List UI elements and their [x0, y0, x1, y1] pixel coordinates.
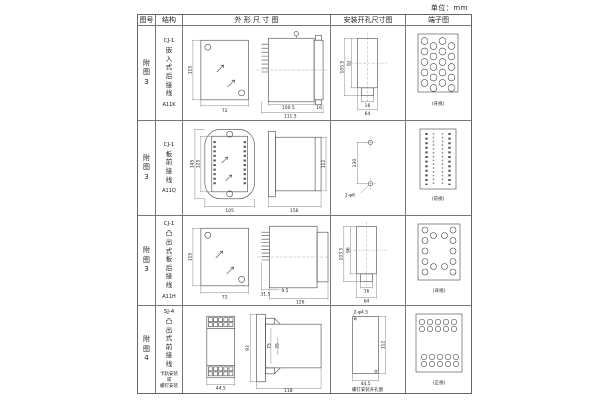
dim-label: 105: [225, 208, 234, 214]
row4-structure-type: SJ-4: [164, 309, 174, 315]
row1-mounting-cell: 105.5 92 16 64: [331, 26, 406, 121]
row2-structure-model: A11Q: [162, 188, 176, 194]
row2-mounting-cell: 130 2-φ6: [331, 121, 406, 216]
row3-terminal-drawing: (背视): [406, 216, 471, 306]
dim-label: 16: [365, 103, 371, 109]
hole-label: 2-φ6: [345, 192, 355, 198]
row4-structure-note: 卡轨安装 或 螺钉安装: [160, 372, 178, 390]
dim-label: 92: [347, 60, 353, 66]
row3-structure-desc: 凸出式板后接线: [166, 229, 173, 289]
row1-terminal-cell: (背视): [406, 26, 471, 121]
unit-label: 单位：mm: [431, 3, 468, 13]
dim-label: 9.5: [281, 287, 288, 293]
row4-structure-desc: 凸出式前接线: [166, 317, 173, 368]
row2-structure-type: CJ-1: [164, 142, 175, 148]
dim-label: 44.5: [216, 386, 226, 392]
row1-structure-cell: CJ-1 嵌入式后接线 A11K: [156, 26, 183, 121]
row2-terminal-drawing: (前视): [406, 121, 471, 216]
row3-figure-no: 附图3: [143, 246, 150, 274]
dim-label: 111.5: [284, 113, 297, 119]
row4-figure-no-cell: 附图4: [138, 306, 156, 393]
row2-structure-cell: CJ-1 板前接线 A11Q: [156, 121, 183, 216]
dim-label: 16: [364, 288, 370, 294]
dim-label: 16: [316, 105, 322, 111]
row4-mounting-drawing: 2-φ4.5 112 44.5 螺钉安装开孔图: [331, 306, 405, 393]
row4-structure-cell: SJ-4 凸出式前接线 卡轨安装 或 螺钉安装: [156, 306, 183, 393]
row4-mounting-cell: 2-φ4.5 112 44.5 螺钉安装开孔图: [331, 306, 406, 393]
row2-outline-drawing: 145 125 105 112 156: [183, 121, 330, 216]
row3-outline-drawing: 115 72 31.5 9.5 126: [183, 216, 330, 306]
mounting-caption: 螺钉安装开孔图: [352, 386, 384, 393]
dim-label: 156: [290, 208, 299, 214]
dim-label: 112: [321, 159, 327, 168]
dimension-table: 图号 结构 外 形 尺 寸 图 安装开孔尺寸图 端子图 附图3 CJ-1 嵌入式…: [137, 14, 472, 394]
header-figure-no: 图号: [138, 15, 156, 26]
page: { "unit_label": "单位：mm", "header": { "fi…: [0, 0, 600, 400]
dim-label: 118: [284, 388, 293, 393]
row4-outline-cell: 44.5 75 35 93 118: [183, 306, 331, 393]
row4-outline-drawing: 44.5 75 35 93 118: [183, 306, 330, 393]
dim-label: 145: [189, 159, 195, 168]
row2-structure-desc: 板前接线: [166, 150, 173, 184]
dim-label: 115: [187, 252, 193, 261]
row3-outline-cell: 115 72 31.5 9.5 126: [183, 216, 331, 306]
row3-figure-no-cell: 附图3: [138, 216, 156, 306]
dim-label: 112: [380, 341, 386, 350]
terminal-caption: (背视): [432, 100, 445, 107]
row2-terminal-cell: (前视): [406, 121, 471, 216]
dim-label: 44.5: [361, 381, 371, 387]
row1-outline-drawing: 115 72 100.5 16 111.5: [183, 26, 330, 121]
row3-structure-cell: CJ-1 凸出式板后接线 A11H: [156, 216, 183, 306]
dim-label: 100.5: [282, 105, 295, 111]
dim-label: 125: [195, 159, 201, 168]
terminal-caption: (背视): [433, 287, 446, 294]
dim-label: 72: [222, 108, 228, 114]
dim-label: 35: [274, 343, 280, 349]
terminal-caption: (正视): [433, 379, 446, 386]
row2-mounting-drawing: 130 2-φ6: [331, 121, 405, 216]
dim-label: 126: [296, 299, 305, 305]
row3-mounting-cell: 103.5 96 16 64: [331, 216, 406, 306]
row1-structure-desc: 嵌入式后接线: [166, 46, 173, 97]
row2-outline-cell: 145 125 105 112 156: [183, 121, 331, 216]
dim-label: 31.5: [260, 291, 270, 297]
dim-label: 93: [245, 345, 251, 351]
row2-figure-no-cell: 附图3: [138, 121, 156, 216]
dim-label: 64: [364, 298, 370, 304]
row1-figure-no: 附图3: [143, 59, 150, 87]
dim-label: 72: [222, 294, 228, 300]
dim-label: 96: [346, 247, 352, 253]
dim-label: 105.5: [339, 60, 345, 73]
hole-label: 2-φ4.5: [354, 309, 369, 315]
row3-structure-model: A11H: [162, 294, 176, 300]
header-outline: 外 形 尺 寸 图: [183, 15, 331, 26]
dim-label: 64: [365, 110, 371, 116]
row1-structure-type: CJ-1: [164, 38, 175, 44]
row3-structure-type: CJ-1: [164, 221, 175, 227]
row2-figure-no: 附图3: [143, 154, 150, 182]
dim-label: 130: [352, 158, 358, 167]
header-terminal: 端子图: [406, 15, 471, 26]
row4-figure-no: 附图4: [143, 335, 150, 363]
row4-terminal-drawing: (正视): [406, 306, 471, 393]
dim-label: 103.5: [338, 247, 344, 260]
row3-mounting-drawing: 103.5 96 16 64: [331, 216, 405, 306]
header-mounting: 安装开孔尺寸图: [331, 15, 406, 26]
row1-structure-model: A11K: [162, 102, 175, 108]
row1-figure-no-cell: 附图3: [138, 26, 156, 121]
row1-mounting-drawing: 105.5 92 16 64: [331, 26, 405, 121]
header-structure: 结构: [156, 15, 183, 26]
row1-terminal-drawing: (背视): [406, 26, 471, 121]
row4-terminal-cell: (正视): [406, 306, 471, 393]
row1-outline-cell: 115 72 100.5 16 111.5: [183, 26, 331, 121]
terminal-caption: (前视): [432, 195, 445, 202]
dim-label: 75: [266, 343, 272, 349]
dim-label: 115: [187, 65, 193, 74]
row3-terminal-cell: (背视): [406, 216, 471, 306]
